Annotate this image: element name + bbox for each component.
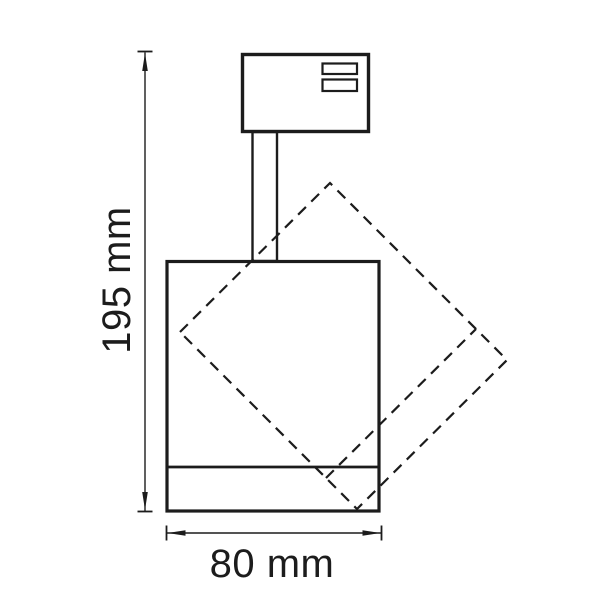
rotated-trim-line bbox=[326, 329, 476, 478]
width-dimension-arrow-left bbox=[168, 530, 186, 536]
lamp-body bbox=[167, 262, 379, 512]
width-dimension-label: 80 mm bbox=[210, 542, 335, 586]
height-dimension-arrow-up bbox=[142, 53, 148, 71]
stem bbox=[253, 132, 278, 261]
height-dimension-label: 195 mm bbox=[95, 206, 139, 354]
adapter-slot-bottom bbox=[323, 80, 358, 92]
track-adapter-box bbox=[243, 55, 369, 132]
lamp-head bbox=[167, 262, 379, 512]
width-dimension-arrow-right bbox=[363, 530, 381, 536]
adapter-slot-top bbox=[323, 64, 358, 75]
height-dimension: 195 mm bbox=[95, 52, 153, 512]
drawing-stage: 195 mm 80 mm bbox=[0, 0, 600, 600]
height-dimension-arrow-down bbox=[142, 492, 148, 510]
rotated-head-position bbox=[180, 183, 507, 509]
width-dimension: 80 mm bbox=[167, 526, 382, 587]
spotlight-dimension-drawing: 195 mm 80 mm bbox=[0, 0, 600, 600]
track-adapter bbox=[243, 55, 369, 132]
